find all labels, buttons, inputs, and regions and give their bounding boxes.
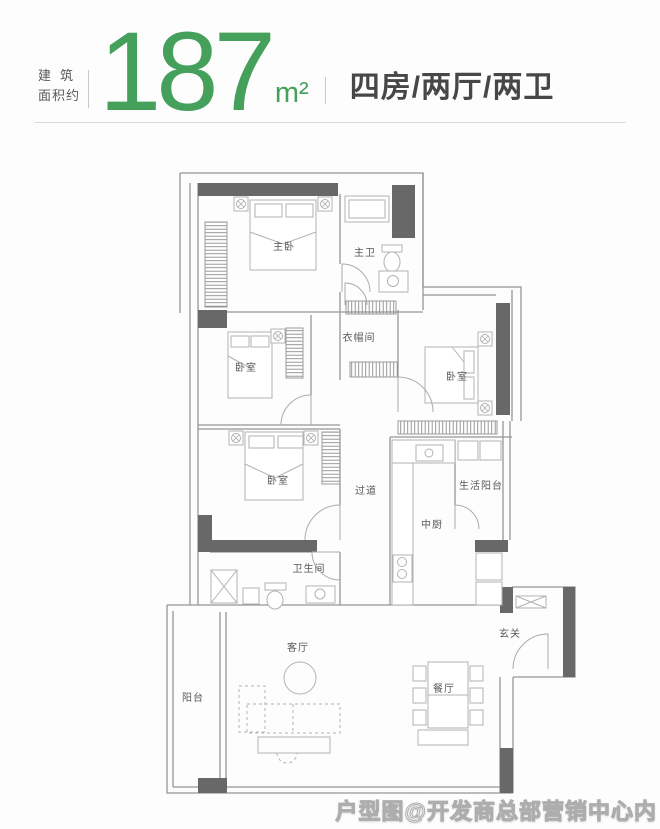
foyer-fixtures [516, 596, 546, 608]
living-furniture [239, 662, 340, 763]
sofa [239, 686, 340, 733]
round-rug [284, 662, 316, 694]
floor-plan: 主卧主卫衣帽间卧室卧室卧室过道生活阳台中厨卫生间玄关客厅餐厅阳台 [0, 0, 660, 829]
chair [413, 666, 426, 681]
room-label-dining-room: 餐厅 [433, 682, 455, 695]
dining-furniture [413, 662, 483, 745]
room-label-master-bedroom: 主卧 [273, 240, 295, 253]
toilet-2 [265, 583, 286, 590]
room-label-bedroom-4: 卧室 [267, 474, 289, 487]
room-label-foyer: 玄关 [499, 627, 521, 640]
bedroom-4-door [305, 505, 340, 540]
chair [470, 688, 483, 703]
sideboard [418, 730, 468, 745]
walls-outline [167, 173, 575, 793]
floorplan-page: 建筑 面积约 187 m² 四房/两厅/两卫 [0, 0, 660, 829]
master-bath-door [342, 264, 370, 292]
chair [413, 710, 426, 725]
room-label-bedroom-2: 卧室 [235, 361, 257, 374]
room-label-cloakroom: 衣帽间 [343, 331, 376, 344]
fridge [476, 553, 502, 580]
chair [470, 710, 483, 725]
room-label-hallway: 过道 [355, 484, 377, 497]
room-label-balcony: 阳台 [182, 691, 204, 704]
master-sink [379, 271, 408, 292]
bed-4 [245, 432, 303, 500]
room-label-bathroom: 卫生间 [293, 562, 326, 575]
washer [458, 441, 478, 460]
room-label-kitchen: 中厨 [421, 518, 443, 531]
stove [393, 555, 412, 582]
watermark: 户型图@开发商总部营销中心内 [336, 794, 657, 826]
room-label-bedroom-3: 卧室 [446, 370, 468, 383]
master-bed [250, 200, 316, 270]
room-label-living-room: 客厅 [287, 641, 309, 654]
room-label-service-balcony: 生活阳台 [459, 479, 503, 492]
master-toilet [382, 245, 402, 252]
service-balcony-door [455, 505, 479, 529]
room-label-master-bath: 主卫 [354, 247, 376, 259]
tv-cabinet [258, 737, 330, 753]
bedroom-2-door [281, 395, 311, 425]
chair [470, 666, 483, 681]
tv [277, 753, 297, 763]
kitchen-sink [416, 445, 443, 461]
kitchen-fixtures [392, 440, 502, 605]
chair [413, 688, 426, 703]
